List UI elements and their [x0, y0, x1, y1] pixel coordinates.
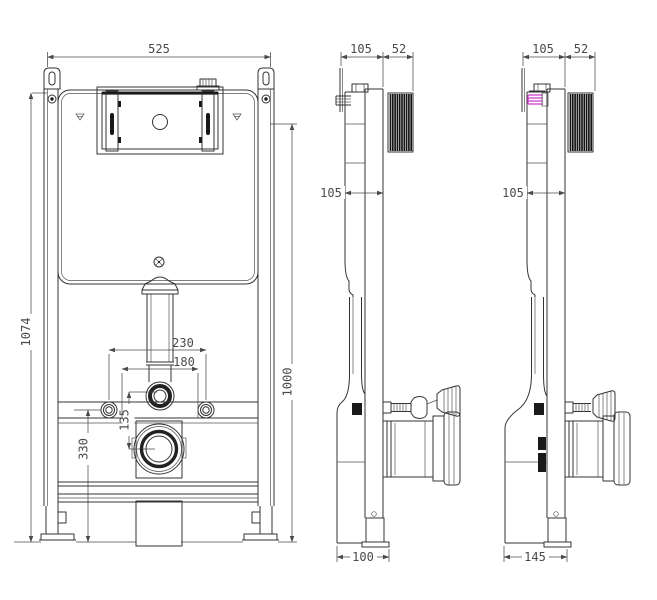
- fixing-bolt-right: [198, 402, 214, 418]
- drawing-svg: 525 1074 1000: [0, 0, 657, 600]
- drain-connector-right: [565, 412, 630, 485]
- dim-bolt-height: 330: [74, 410, 101, 542]
- inlet-valve-center: [383, 386, 460, 419]
- drain-connector-center: [383, 412, 460, 485]
- front-view: 525 1074 1000: [14, 42, 299, 546]
- mounting-bracket-right: [258, 68, 274, 103]
- dim-overall-height: 1074: [19, 93, 47, 542]
- dim-label-plate-depth-center: 52: [392, 42, 406, 56]
- inlet-fitting-highlight: [528, 91, 548, 106]
- flush-plate-block-right: [568, 93, 593, 152]
- flush-plate-access-box: [97, 87, 223, 154]
- dim-label-depth-base-center: 100: [352, 550, 374, 564]
- dim-label-frame-height: 1000: [281, 368, 295, 397]
- pipe-clamp-center: [352, 403, 362, 415]
- valve-knob-right: [593, 391, 615, 421]
- technical-drawing-canvas: 525 1074 1000: [0, 0, 657, 600]
- inlet-stub-center: [336, 96, 351, 105]
- dim-label-frame-width: 525: [148, 42, 170, 56]
- dim-label-overall-height: 1074: [19, 318, 33, 347]
- dim-label-bolt-height: 330: [77, 438, 91, 460]
- inlet-valve-right: [565, 391, 615, 421]
- flush-pipe-side-right: [505, 297, 547, 543]
- dim-frame-width: 525: [48, 42, 271, 67]
- dim-label-flush-to-drain: 135: [118, 409, 132, 431]
- inlet-valve-cap: [197, 79, 219, 90]
- foot-side-center: [362, 518, 389, 547]
- rail-side-right: [547, 89, 565, 518]
- drain-socket: [132, 421, 186, 478]
- leg-clip-right: [252, 512, 260, 523]
- fixing-bolt-left: [101, 402, 117, 418]
- dim-depth-base-right: 145: [504, 546, 567, 564]
- bracket-slot-left: [49, 72, 55, 85]
- side-view-right: 105 52: [499, 42, 630, 564]
- dim-depth-base-center: 100: [337, 546, 389, 564]
- cistern-tank: [58, 90, 258, 284]
- drain-seal-upper: [538, 437, 546, 450]
- dim-depth-mid-right: 105: [499, 186, 565, 200]
- foot-side-right: [544, 518, 571, 547]
- push-rod-hole: [153, 115, 168, 130]
- leg-clip-left: [58, 512, 66, 523]
- dim-depth-mid-center: 105: [317, 186, 383, 200]
- drain-seal-lower: [538, 453, 546, 472]
- bracket-slot-right: [263, 72, 269, 85]
- level-mark-left: [76, 114, 84, 120]
- side-view-center: 105 52: [317, 42, 460, 564]
- frame-rail-left: [44, 89, 58, 506]
- flush-pipe-side-center: [337, 297, 365, 543]
- wall-strap-right: [522, 68, 525, 112]
- flush-bend-connector: [146, 382, 174, 410]
- foot-left: [39, 506, 76, 540]
- dim-label-depth-base-right: 145: [524, 550, 546, 564]
- dim-label-depth-mid-center: 105: [320, 186, 342, 200]
- dim-label-depth-top-right: 105: [532, 42, 554, 56]
- tank-screw: [154, 257, 164, 267]
- drain-duct-outline: [136, 501, 182, 546]
- frame-rail-right: [258, 89, 274, 506]
- level-mark-right: [233, 114, 241, 120]
- dim-label-plate-depth-right: 52: [574, 42, 588, 56]
- dim-label-depth-top-center: 105: [350, 42, 372, 56]
- pipe-clamp-right: [534, 403, 544, 415]
- flush-plate-block-center: [388, 93, 413, 152]
- foot-right: [242, 506, 279, 540]
- dim-label-bolt-spacing: 230: [172, 336, 194, 350]
- dim-label-depth-mid-right: 105: [502, 186, 524, 200]
- dim-label-outlet-spacing: 180: [173, 355, 195, 369]
- rail-side-center: [365, 89, 383, 518]
